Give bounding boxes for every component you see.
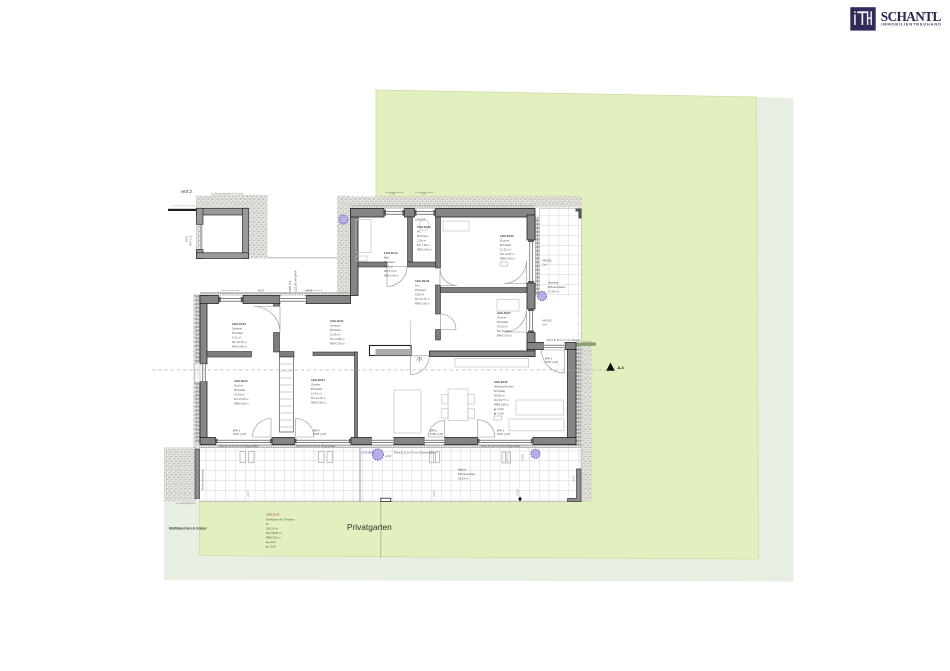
svg-text:B Betonplatten: B Betonplatten <box>548 285 566 289</box>
svg-text:2x4: 2x4 <box>543 323 548 327</box>
svg-text:Zimmer: Zimmer <box>500 239 509 243</box>
svg-text:Freifläche inkl. Terrasse: Freifläche inkl. Terrasse <box>266 518 295 522</box>
svg-text:B Fliesen: B Fliesen <box>384 260 396 264</box>
svg-text:3.EG.03.05: 3.EG.03.05 <box>494 380 508 384</box>
svg-text:2x4: 2x4 <box>543 263 548 267</box>
svg-text:+0,08: +0,08 <box>521 454 525 461</box>
svg-text:3.EG.03.07: 3.EG.03.07 <box>497 311 511 315</box>
svg-text:2.EG.02.10: 2.EG.02.10 <box>384 251 398 255</box>
svg-text:RU 14,04 m: RU 14,04 m <box>500 252 515 256</box>
svg-text:2,54 m²: 2,54 m² <box>417 239 426 243</box>
svg-text:M4/200: M4/200 <box>543 319 552 323</box>
svg-text:RBH 2,86 m: RBH 2,86 m <box>232 345 247 349</box>
svg-text:RU 10,45 m: RU 10,45 m <box>232 340 247 344</box>
svg-text:M4/200: M4/200 <box>543 259 552 263</box>
svg-text:TOP 2.2: TOP 2.2 <box>288 280 292 292</box>
svg-text:RU 15,43 m: RU 15,43 m <box>497 329 512 333</box>
svg-text:BRH 2,10: BRH 2,10 <box>190 235 193 246</box>
svg-text:15,43 m²: 15,43 m² <box>234 393 245 397</box>
svg-text:RBH 2,66 m: RBH 2,66 m <box>415 302 430 306</box>
svg-text:◆ +0,08: ◆ +0,08 <box>266 545 276 549</box>
svg-text:Zimmer: Zimmer <box>234 384 243 388</box>
svg-text:Flur: Flur <box>415 284 420 288</box>
svg-text:WC: WC <box>417 230 422 234</box>
svg-text:87/86 +2,95: 87/86 +2,95 <box>313 433 326 436</box>
svg-text:Rinne B. 20 cm 7/6 cm Pflegesc: Rinne B. 20 cm 7/6 cm Pflegeschlauf <box>219 445 259 448</box>
svg-text:RBH 2,66 m: RBH 2,66 m <box>417 248 432 252</box>
svg-text:◆ +0,00: ◆ +0,00 <box>266 540 276 544</box>
svg-text:+0,07: +0,07 <box>246 490 250 497</box>
svg-text:RU 9,72 m: RU 9,72 m <box>384 269 398 273</box>
svg-text:RBH 2,66 m: RBH 2,66 m <box>234 402 249 406</box>
svg-text:ca. Nachbargrenze: ca. Nachbargrenze <box>176 502 196 505</box>
svg-text:1,01: 1,01 <box>421 193 426 196</box>
svg-text:RBH 5,00 m: RBH 5,00 m <box>266 536 281 540</box>
svg-text:18,24 m²: 18,24 m² <box>458 477 469 481</box>
svg-text:87/86 +2,95: 87/86 +2,95 <box>233 433 246 436</box>
svg-text:B Parkett: B Parkett <box>497 320 508 324</box>
svg-text:Rinne B. 20 cm 7/6 cm Pflegesc: Rinne B. 20 cm 7/6 cm Pflegeschlauf <box>296 445 336 448</box>
svg-text:5,23 m²: 5,23 m² <box>384 265 393 269</box>
svg-text:112,36 m² WNF: 112,36 m² WNF <box>294 270 298 292</box>
svg-text:RBH 2,66 m: RBH 2,66 m <box>311 401 326 405</box>
svg-text:A-4: A-4 <box>618 366 625 370</box>
svg-text:12,41 m²: 12,41 m² <box>311 392 322 396</box>
svg-text:B Parkett: B Parkett <box>311 387 322 391</box>
svg-text:RH 140/97 m: RH 140/97 m <box>266 531 283 535</box>
svg-text:RBH 2,66 m: RBH 2,66 m <box>494 403 509 407</box>
svg-text:80/20: 80/20 <box>186 235 189 242</box>
svg-text:B Parkett: B Parkett <box>234 388 245 392</box>
svg-text:B Parkett: B Parkett <box>500 243 511 247</box>
svg-text:Wohnen/Kochen: Wohnen/Kochen <box>494 385 514 389</box>
svg-text:+0,00 /BO2: +0,00 /BO2 <box>361 452 374 455</box>
svg-text:Schrank: Schrank <box>232 327 243 331</box>
svg-text:B Fliesen: B Fliesen <box>417 234 429 238</box>
svg-text:+0,07: +0,07 <box>432 490 436 497</box>
svg-text:B Fliesen: B Fliesen <box>330 328 342 332</box>
svg-text:Rinne B. 20 cm 7,6 cm Selbstre: Rinne B. 20 cm 7,6 cm Selbstreinigend <box>394 452 436 455</box>
svg-text:5,69 m²: 5,69 m² <box>415 293 424 297</box>
svg-text:Privatgarten: Privatgarten <box>347 522 392 532</box>
svg-text:RU 26,77 m: RU 26,77 m <box>494 398 509 402</box>
svg-text:RU 15,28 m: RU 15,28 m <box>234 397 249 401</box>
svg-text:3.EG.03.03: 3.EG.03.03 <box>232 322 246 326</box>
svg-text:Zimmer: Zimmer <box>497 316 506 320</box>
svg-text:◆ +0,00: ◆ +0,00 <box>494 407 504 411</box>
svg-text:3.EG.03.04: 3.EG.03.04 <box>234 379 248 383</box>
svg-text:B Betonplatten: B Betonplatten <box>458 472 476 476</box>
svg-text:11,08 m²: 11,08 m² <box>330 333 341 337</box>
svg-text:12,21 m²: 12,21 m² <box>500 248 511 252</box>
svg-text:87/86 +2,95: 87/86 +2,95 <box>430 433 443 436</box>
svg-text:1,01: 1,01 <box>390 193 395 196</box>
svg-text:17,36 m²: 17,36 m² <box>548 290 559 294</box>
svg-text:+0,55: +0,55 <box>572 475 576 482</box>
svg-text:Rinne B. 20 cm 7,6 cm Pflegen: Rinne B. 20 cm 7,6 cm Pflegen <box>547 339 581 342</box>
svg-text:Zimmer: Zimmer <box>311 383 320 387</box>
svg-text:Vorraum: Vorraum <box>330 324 341 328</box>
svg-text:B –: B – <box>266 522 271 526</box>
svg-text:RU 13,86 m: RU 13,86 m <box>330 337 345 341</box>
svg-text:IMMOBILIENTREUHAND: IMMOBILIENTREUHAND <box>881 22 941 27</box>
svg-text:RU 7,28 m: RU 7,28 m <box>417 243 431 247</box>
svg-text:Hof 2: Hof 2 <box>181 189 192 194</box>
svg-text:Müllhäuschen & Gräser: Müllhäuschen & Gräser <box>169 527 208 531</box>
svg-text:+0,58: +0,58 <box>516 489 520 496</box>
svg-text:Balkon: Balkon <box>458 468 467 472</box>
svg-text:2.EG.02.09: 2.EG.02.09 <box>417 225 431 229</box>
svg-text:B Parkett: B Parkett <box>494 389 505 393</box>
svg-text:245,24 m²: 245,24 m² <box>266 527 278 531</box>
svg-text:B Fliesen: B Fliesen <box>415 288 427 292</box>
svg-text:RBH 2,60 m: RBH 2,60 m <box>330 342 345 346</box>
svg-text:B Parkett: B Parkett <box>232 331 243 335</box>
svg-text:RU 14,15 m: RU 14,15 m <box>311 396 326 400</box>
svg-text:Kiesweg: Kiesweg <box>548 281 559 285</box>
svg-text:4,31 m²: 4,31 m² <box>232 336 241 340</box>
svg-text:Sichtschutzstreifen: Sichtschutzstreifen <box>202 468 205 490</box>
svg-text:87/86 +2,95: 87/86 +2,95 <box>497 433 510 436</box>
svg-text:2x86/230: 2x86/230 <box>415 219 426 222</box>
svg-text:ca. Bestandsmauer 5 m/s usw.: ca. Bestandsmauer 5 m/s usw. <box>211 193 244 196</box>
svg-text:3.EG.TB.03: 3.EG.TB.03 <box>415 279 430 283</box>
svg-text:3.EG.03.04: 3.EG.03.04 <box>311 378 325 382</box>
svg-text:RBH 2,66 m: RBH 2,66 m <box>497 334 512 338</box>
svg-text:14,23 m²: 14,23 m² <box>497 325 508 329</box>
svg-text:Bad: Bad <box>384 256 389 260</box>
svg-text:86/30: 86/30 <box>258 290 265 293</box>
svg-text:RBH 2,66 m: RBH 2,66 m <box>384 274 399 278</box>
svg-text:RBH 2,66 m: RBH 2,66 m <box>500 257 515 261</box>
svg-text:+0,00: +0,00 <box>385 455 392 458</box>
svg-text:RU 13,74 m: RU 13,74 m <box>415 297 430 301</box>
svg-text:36,05 m²: 36,05 m² <box>494 394 505 398</box>
svg-text:2.EG.03.01: 2.EG.03.01 <box>330 319 344 323</box>
svg-text:86/30: 86/30 <box>306 290 313 293</box>
svg-text:◆ −0,30: ◆ −0,30 <box>494 412 504 416</box>
svg-text:Rinne B. 20 cm 7/6 cm Pflegesc: Rinne B. 20 cm 7/6 cm Pflegeschlauf <box>481 445 521 448</box>
svg-text:87/86 +2,95: 87/86 +2,95 <box>545 361 558 364</box>
svg-text:2.EG.02.11: 2.EG.02.11 <box>266 513 280 517</box>
svg-text:3.EG.03.06: 3.EG.03.06 <box>500 234 514 238</box>
